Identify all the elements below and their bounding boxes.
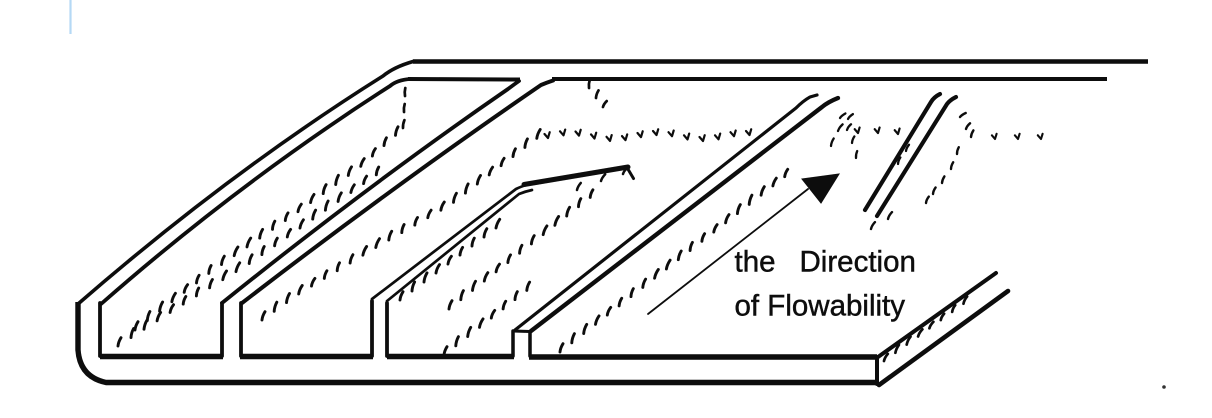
- svg-text:Direction: Direction: [800, 246, 916, 279]
- svg-text:of Flowability: of Flowability: [735, 290, 906, 323]
- svg-text:the: the: [735, 246, 776, 279]
